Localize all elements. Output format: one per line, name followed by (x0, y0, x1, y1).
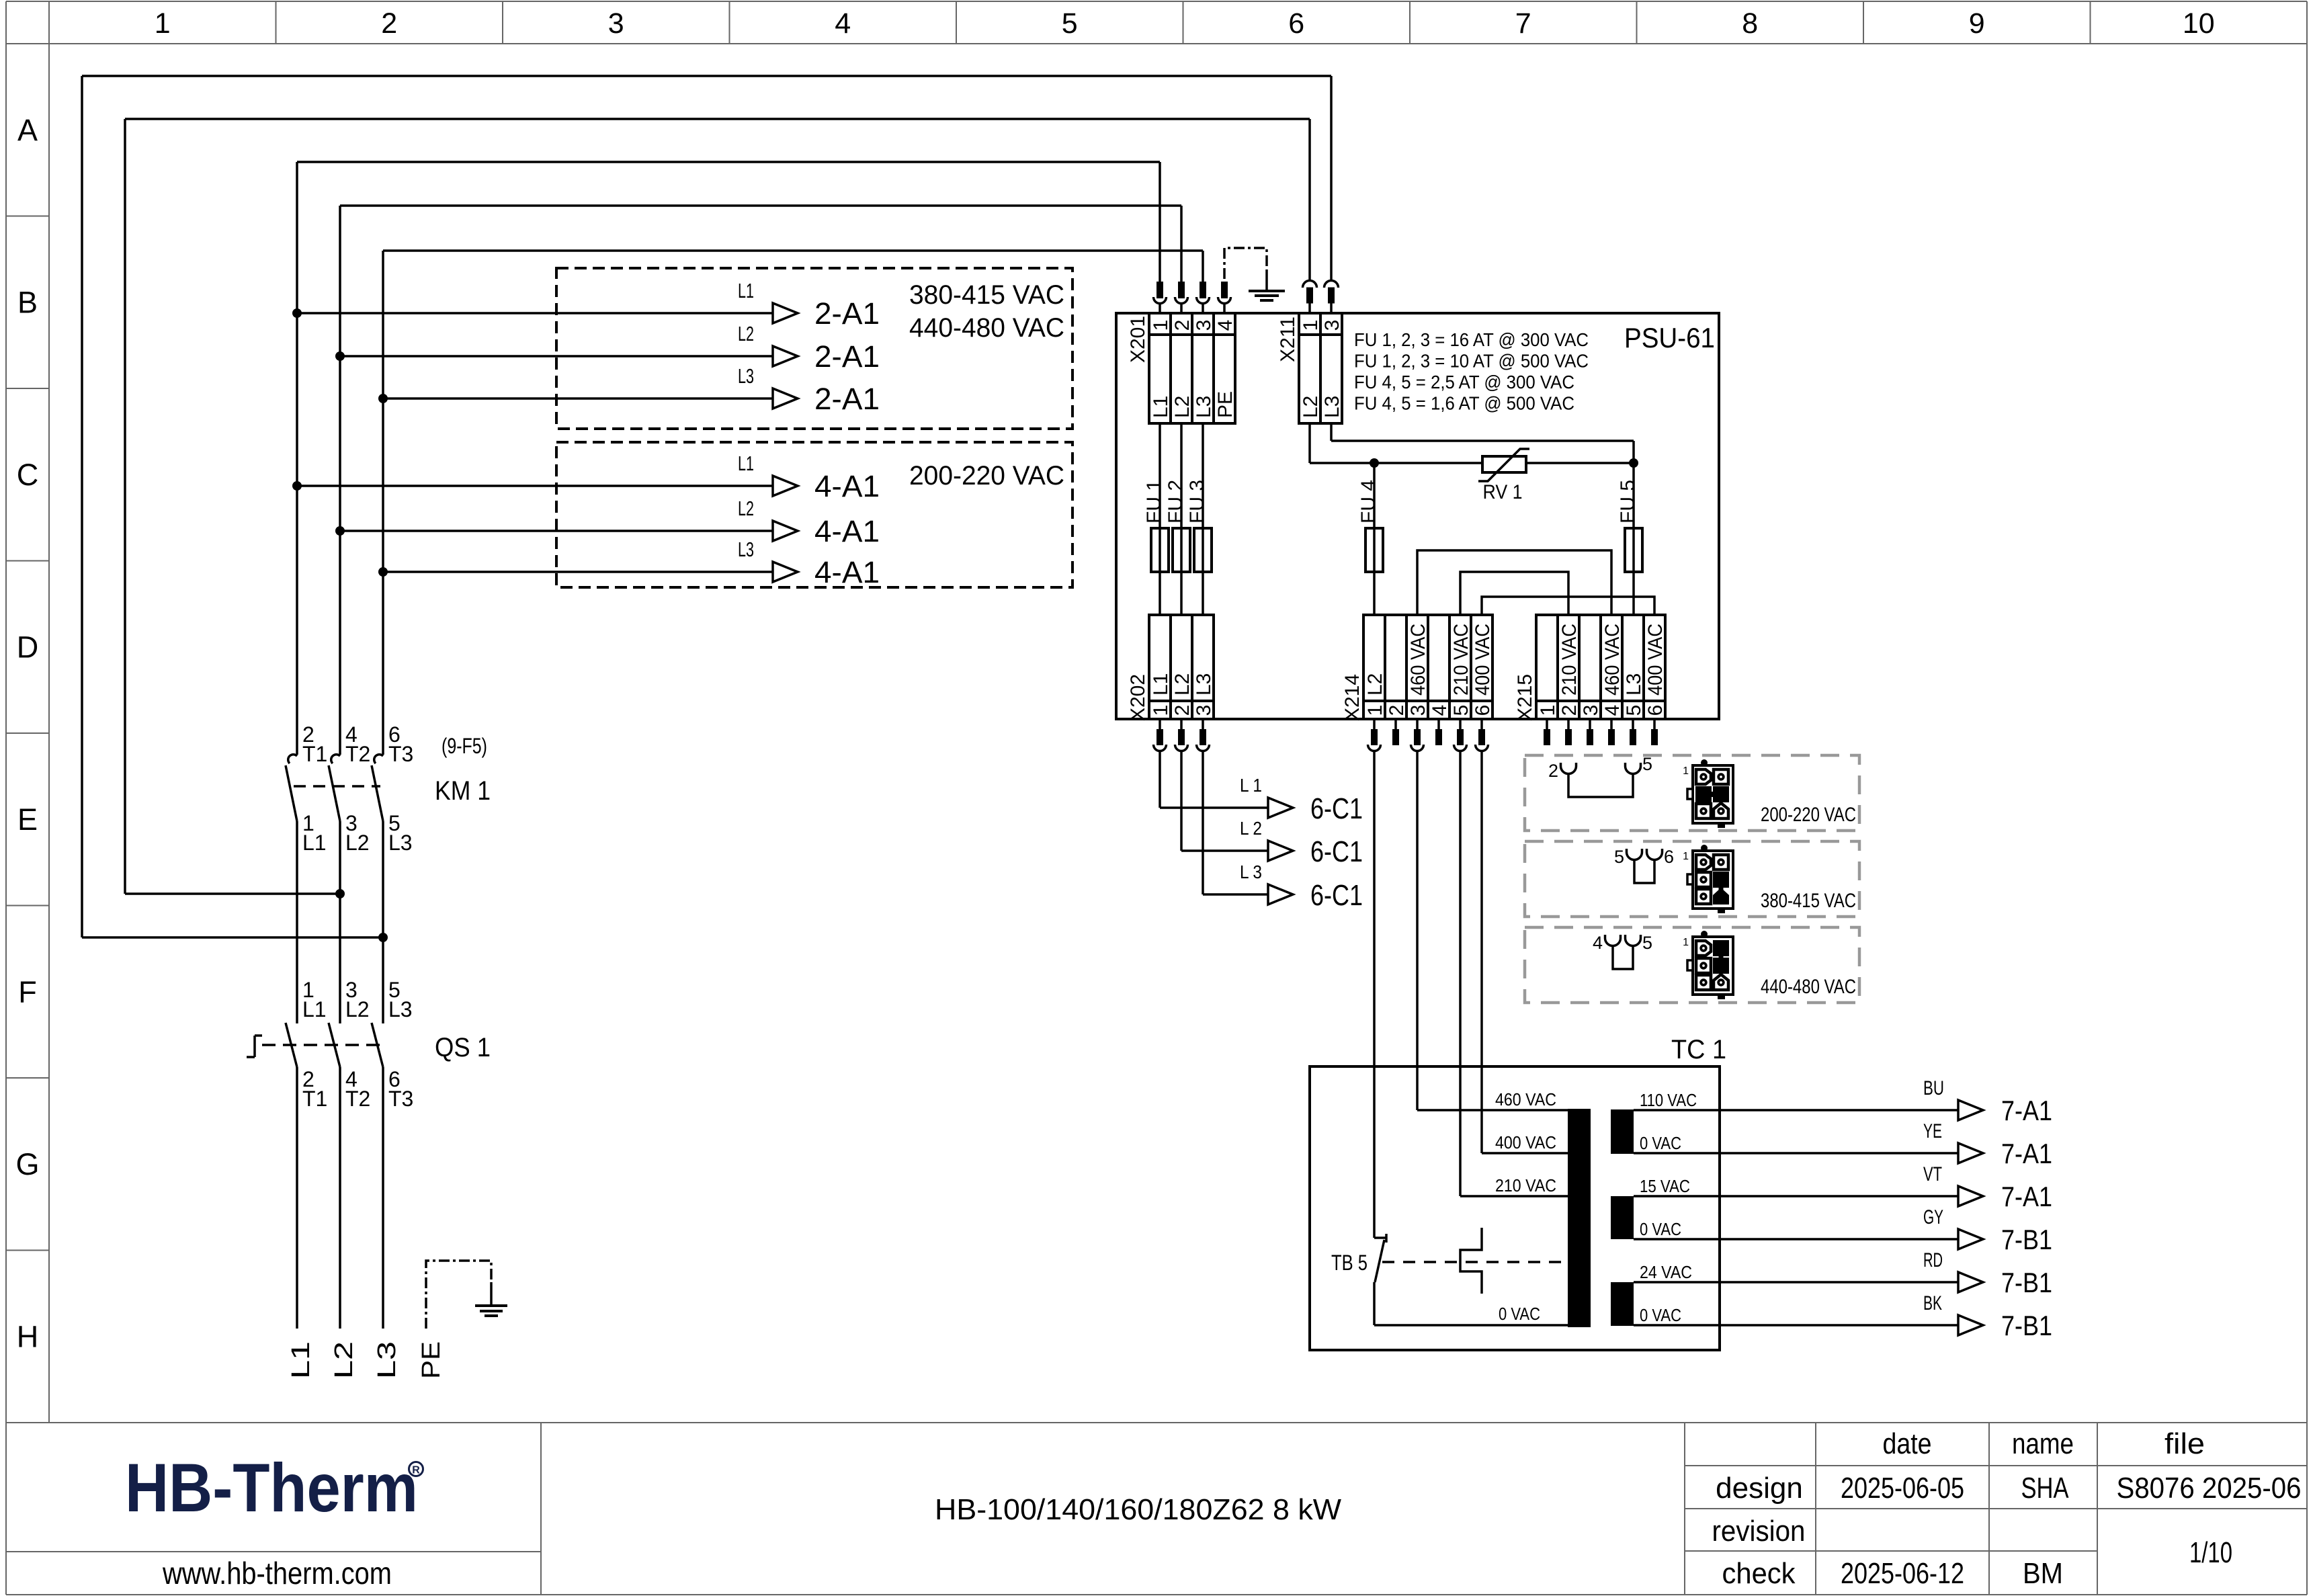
svg-text:0 VAC: 0 VAC (1640, 1219, 1681, 1239)
svg-text:6: 6 (1288, 7, 1304, 40)
svg-text:5: 5 (1450, 705, 1472, 716)
svg-text:R: R (412, 1465, 420, 1476)
svg-text:110 VAC: 110 VAC (1640, 1090, 1697, 1110)
svg-text:FU 4: FU 4 (1357, 480, 1380, 523)
svg-text:TB 5: TB 5 (1331, 1251, 1368, 1275)
svg-text:440-480 VAC: 440-480 VAC (909, 313, 1064, 343)
svg-text:L1: L1 (287, 1341, 315, 1379)
svg-text:210 VAC: 210 VAC (1558, 624, 1581, 696)
svg-text:7-A1: 7-A1 (2001, 1095, 2052, 1126)
svg-text:L3: L3 (1321, 396, 1343, 418)
svg-text:6: 6 (1472, 705, 1494, 716)
svg-text:FU 5: FU 5 (1617, 480, 1639, 523)
svg-text:G: G (15, 1147, 39, 1181)
svg-text:FU 1, 2, 3 = 10 AT @ 500 VAC: FU 1, 2, 3 = 10 AT @ 500 VAC (1354, 351, 1589, 372)
svg-text:PE: PE (417, 1341, 446, 1379)
svg-text:KM 1: KM 1 (435, 776, 491, 806)
svg-text:L3: L3 (738, 538, 754, 561)
svg-text:4-A1: 4-A1 (814, 514, 880, 548)
svg-text:X201: X201 (1127, 316, 1149, 363)
svg-text:7-B1: 7-B1 (2001, 1310, 2052, 1341)
svg-text:6-C1: 6-C1 (1310, 792, 1363, 825)
svg-text:H: H (17, 1320, 39, 1354)
svg-text:6: 6 (1644, 705, 1667, 716)
svg-text:FU 4, 5 = 2,5 AT @ 300 VAC: FU 4, 5 = 2,5 AT @ 300 VAC (1354, 372, 1574, 392)
svg-text:2025-06-05: 2025-06-05 (1841, 1472, 1964, 1505)
svg-text:2025-06-12: 2025-06-12 (1841, 1557, 1964, 1590)
svg-text:2: 2 (1386, 705, 1408, 716)
svg-text:L3: L3 (373, 1341, 401, 1379)
svg-text:GY: GY (1923, 1206, 1943, 1228)
svg-text:HB-100/140/160/180Z62 8 kW: HB-100/140/160/180Z62 8 kW (935, 1493, 1341, 1526)
svg-text:L3: L3 (388, 831, 413, 855)
svg-text:6-C1: 6-C1 (1310, 879, 1363, 912)
svg-text:10: 10 (2183, 7, 2215, 40)
svg-text:5: 5 (1642, 933, 1652, 953)
svg-text:1: 1 (1300, 320, 1322, 331)
svg-text:C: C (17, 458, 39, 492)
svg-text:6: 6 (1664, 847, 1674, 867)
svg-text:4-A1: 4-A1 (814, 469, 880, 503)
svg-text:VT: VT (1923, 1163, 1942, 1185)
svg-text:www.hb-therm.com: www.hb-therm.com (162, 1556, 392, 1591)
svg-text:5: 5 (1062, 7, 1078, 40)
svg-text:L2: L2 (1171, 673, 1193, 696)
svg-text:A: A (17, 113, 38, 147)
svg-text:T1: T1 (302, 1087, 327, 1111)
svg-text:T3: T3 (388, 742, 413, 766)
svg-text:1: 1 (1537, 705, 1559, 716)
svg-text:2: 2 (381, 7, 397, 40)
svg-text:400 VAC: 400 VAC (1472, 624, 1494, 696)
svg-text:5: 5 (1623, 705, 1645, 716)
svg-text:460 VAC: 460 VAC (1407, 624, 1429, 696)
svg-text:FU 1: FU 1 (1143, 480, 1165, 523)
svg-text:200-220 VAC: 200-220 VAC (1761, 804, 1856, 826)
svg-text:L1: L1 (302, 997, 327, 1021)
svg-text:design: design (1716, 1472, 1803, 1505)
svg-text:L2: L2 (1364, 673, 1386, 696)
svg-text:X202: X202 (1127, 674, 1149, 721)
svg-text:S8076 2025-06: S8076 2025-06 (2117, 1472, 2302, 1505)
svg-text:name: name (2012, 1427, 2074, 1460)
svg-text:3: 3 (1321, 320, 1343, 331)
svg-text:0 VAC: 0 VAC (1640, 1305, 1681, 1325)
svg-text:L 3: L 3 (1240, 862, 1262, 882)
svg-text:9: 9 (1969, 7, 1985, 40)
svg-text:1: 1 (1150, 705, 1172, 716)
svg-text:1/10: 1/10 (2189, 1536, 2232, 1569)
svg-text:210 VAC: 210 VAC (1495, 1175, 1556, 1195)
svg-text:8: 8 (1742, 7, 1758, 40)
svg-text:RD: RD (1923, 1249, 1943, 1271)
svg-text:HB-Therm: HB-Therm (125, 1450, 418, 1526)
svg-text:7-B1: 7-B1 (2001, 1267, 2052, 1298)
svg-text:L3: L3 (1193, 673, 1215, 696)
svg-text:2: 2 (1171, 705, 1193, 716)
svg-text:L1: L1 (1150, 673, 1172, 696)
svg-text:T1: T1 (302, 742, 327, 766)
svg-text:YE: YE (1923, 1120, 1942, 1142)
svg-text:2-A1: 2-A1 (814, 296, 880, 331)
svg-text:FU 1, 2, 3 = 16 AT @ 300 VAC: FU 1, 2, 3 = 16 AT @ 300 VAC (1354, 329, 1589, 350)
svg-text:6-C1: 6-C1 (1310, 835, 1363, 868)
svg-text:FU 3: FU 3 (1186, 480, 1208, 523)
svg-text:L2: L2 (345, 997, 370, 1021)
svg-text:L2: L2 (1300, 396, 1322, 418)
svg-text:380-415 VAC: 380-415 VAC (1761, 890, 1856, 912)
svg-text:7-A1: 7-A1 (2001, 1181, 2052, 1212)
svg-text:3: 3 (1193, 705, 1215, 716)
svg-text:L2: L2 (330, 1341, 358, 1379)
svg-text:4-A1: 4-A1 (814, 555, 880, 589)
svg-text:X211: X211 (1277, 317, 1299, 362)
svg-text:check: check (1722, 1557, 1796, 1590)
svg-text:1: 1 (1683, 937, 1689, 948)
svg-text:3: 3 (1407, 705, 1429, 716)
svg-text:1: 1 (1364, 705, 1386, 716)
svg-text:4: 4 (1601, 705, 1624, 716)
svg-text:15 VAC: 15 VAC (1640, 1176, 1690, 1196)
svg-text:PSU-61: PSU-61 (1624, 322, 1715, 353)
svg-text:B: B (17, 286, 38, 320)
svg-text:L1: L1 (1150, 396, 1172, 418)
svg-text:7-A1: 7-A1 (2001, 1138, 2052, 1169)
svg-text:RV 1: RV 1 (1483, 481, 1523, 503)
svg-text:380-415 VAC: 380-415 VAC (909, 280, 1064, 310)
svg-text:400 VAC: 400 VAC (1495, 1132, 1556, 1152)
svg-text:3: 3 (1193, 320, 1215, 331)
svg-text:L2: L2 (345, 831, 370, 855)
svg-text:L3: L3 (738, 364, 754, 388)
svg-text:460 VAC: 460 VAC (1495, 1089, 1556, 1109)
svg-text:L1: L1 (738, 452, 754, 475)
svg-text:L1: L1 (738, 279, 754, 302)
svg-text:date: date (1883, 1427, 1932, 1460)
svg-text:TC 1: TC 1 (1671, 1035, 1726, 1064)
svg-text:L 2: L 2 (1240, 818, 1262, 839)
svg-text:24 VAC: 24 VAC (1640, 1262, 1692, 1282)
svg-text:2-A1: 2-A1 (814, 382, 880, 416)
svg-text:FU 4, 5 = 1,6 AT @ 500 VAC: FU 4, 5 = 1,6 AT @ 500 VAC (1354, 393, 1574, 414)
svg-text:2: 2 (1548, 761, 1558, 781)
svg-text:1: 1 (1683, 765, 1689, 777)
svg-text:1: 1 (155, 7, 171, 40)
svg-text:4: 4 (1593, 933, 1603, 953)
svg-text:SHA: SHA (2021, 1472, 2070, 1505)
svg-text:440-480 VAC: 440-480 VAC (1761, 976, 1856, 998)
svg-text:L2: L2 (738, 497, 754, 520)
svg-text:0 VAC: 0 VAC (1640, 1133, 1681, 1153)
svg-text:7: 7 (1515, 7, 1531, 40)
svg-text:E: E (17, 802, 38, 837)
svg-text:F: F (18, 975, 37, 1009)
svg-text:4: 4 (1214, 320, 1236, 331)
svg-text:200-220 VAC: 200-220 VAC (909, 461, 1064, 491)
svg-text:FU 2: FU 2 (1165, 480, 1187, 523)
svg-text:BM: BM (2023, 1557, 2063, 1590)
svg-text:QS 1: QS 1 (435, 1033, 491, 1062)
svg-text:BU: BU (1923, 1077, 1944, 1099)
svg-text:PE: PE (1214, 391, 1236, 418)
svg-text:X215: X215 (1514, 674, 1536, 721)
svg-text:T2: T2 (345, 742, 370, 766)
svg-text:0 VAC: 0 VAC (1499, 1304, 1540, 1324)
svg-text:L1: L1 (302, 831, 327, 855)
svg-text:X214: X214 (1341, 674, 1363, 721)
svg-text:L 1: L 1 (1240, 775, 1262, 796)
svg-text:1: 1 (1683, 851, 1689, 862)
svg-text:D: D (17, 630, 39, 665)
svg-text:2: 2 (1558, 705, 1581, 716)
svg-text:BK: BK (1923, 1292, 1942, 1314)
svg-text:L3: L3 (388, 997, 413, 1021)
svg-text:3: 3 (1580, 705, 1602, 716)
svg-text:1: 1 (1150, 320, 1172, 331)
svg-text:4: 4 (835, 7, 851, 40)
svg-text:T2: T2 (345, 1087, 370, 1111)
svg-text:5: 5 (1642, 754, 1652, 774)
svg-text:5: 5 (1614, 847, 1624, 867)
svg-text:L3: L3 (1623, 673, 1645, 696)
svg-text:3: 3 (608, 7, 624, 40)
svg-text:4: 4 (1429, 705, 1451, 716)
svg-text:L3: L3 (1193, 396, 1215, 418)
svg-text:L2: L2 (1171, 396, 1193, 418)
svg-text:210 VAC: 210 VAC (1450, 624, 1472, 696)
svg-text:T3: T3 (388, 1087, 413, 1111)
svg-text:2-A1: 2-A1 (814, 339, 880, 374)
svg-text:revision: revision (1712, 1515, 1806, 1548)
svg-text:400 VAC: 400 VAC (1644, 624, 1667, 696)
svg-text:file: file (2164, 1427, 2205, 1460)
svg-text:L2: L2 (738, 322, 754, 345)
svg-text:(9-F5): (9-F5) (441, 734, 487, 758)
svg-text:7-B1: 7-B1 (2001, 1224, 2052, 1255)
svg-text:2: 2 (1171, 320, 1193, 331)
svg-text:460 VAC: 460 VAC (1601, 624, 1624, 696)
